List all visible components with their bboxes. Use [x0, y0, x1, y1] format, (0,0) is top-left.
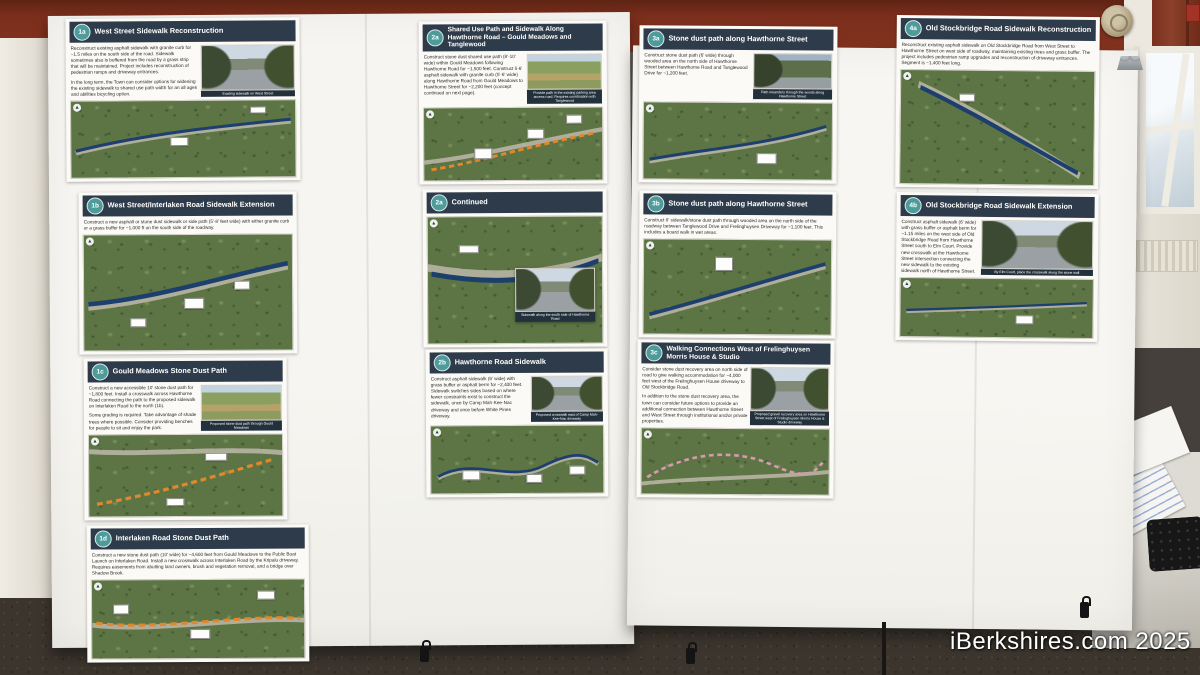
poster-title: Gould Meadows Stone Dust Path — [113, 367, 227, 376]
poster-title: Continued — [452, 198, 488, 207]
poster-badge: 1d — [95, 530, 112, 547]
site-photo: Proposed gravel recovery area on Hawthor… — [750, 367, 829, 426]
inset-photo: Sidewalk along the south side of Hawthor… — [515, 268, 595, 322]
site-photo: Path meanders through the woods along Ha… — [753, 53, 832, 100]
road-photo — [515, 268, 595, 312]
poster-header: 4a Old Stockbridge Road Sidewalk Reconst… — [901, 18, 1096, 41]
poster-text: In addition to the stone dust recovery a… — [642, 394, 748, 425]
poster-badge: 2a — [431, 194, 448, 211]
north-arrow-icon: ▲ — [644, 430, 652, 438]
exit-sign — [1186, 4, 1200, 22]
photo-caption: Existing sidewalk on West Street — [201, 90, 295, 97]
poster-header: 2b Hawthorne Road Sidewalk — [430, 352, 604, 374]
poster-badge: 2b — [434, 354, 451, 371]
board-clip — [686, 648, 695, 664]
map-callout — [462, 470, 480, 480]
aerial-map: ▲ Sidewalk along the south side of Hawth… — [427, 216, 604, 345]
woods-photo — [753, 53, 832, 90]
poster-badge: 1c — [92, 363, 109, 380]
north-arrow-icon: ▲ — [73, 104, 81, 112]
poster-text: Construct 8' sidewalk/stone dust path th… — [644, 217, 831, 237]
site-photo: Provide path in the existing parking are… — [527, 53, 602, 103]
poster-title: Walking Connections West of Frelinghuyse… — [666, 345, 826, 362]
poster-text: Construct asphalt sidewalk (6' wide) wit… — [431, 376, 528, 419]
wall-bell-icon — [1101, 5, 1133, 37]
map-callout — [205, 453, 227, 461]
north-arrow-icon: ▲ — [426, 110, 434, 118]
poster-1a: 1a West Street Sidewalk Reconstruction R… — [65, 17, 300, 182]
poster-header: 3c Walking Connections West of Frelinghu… — [641, 342, 830, 364]
poster-badge: 3c — [645, 344, 662, 361]
poster-title: Old Stockbridge Road Sidewalk Reconstruc… — [926, 25, 1092, 35]
poster-badge: 1a — [73, 24, 90, 41]
poster-text: Consider stone dust recovery area on nor… — [642, 366, 748, 391]
watermark: iBerkshires.com 2025 — [950, 628, 1191, 656]
map-callout — [250, 106, 266, 113]
wainscot — [1128, 214, 1200, 350]
poster-3a: 3a Stone dust path along Hawthorne Stree… — [638, 25, 837, 183]
photo-caption: Path meanders through the woods along Ha… — [753, 89, 832, 100]
poster-header: 4b Old Stockbridge Road Sidewalk Extensi… — [901, 195, 1095, 218]
north-arrow-icon: ▲ — [430, 219, 438, 227]
aerial-map: ▲ — [83, 234, 294, 352]
poster-text: Construct stone dust shared use path (8'… — [424, 54, 524, 97]
board-stand-leg — [882, 622, 886, 675]
map-callout — [526, 474, 542, 483]
road-photo — [531, 376, 603, 412]
photo-caption: Sidewalk along the south side of Hawthor… — [515, 312, 595, 322]
poster-text: Some grading is required. Take advantage… — [89, 412, 198, 431]
aerial-map: ▲ — [91, 579, 305, 660]
poster-title: Old Stockbridge Road Sidewalk Extension — [926, 202, 1073, 212]
map-callout — [184, 298, 204, 309]
map-callout — [527, 129, 544, 139]
poster-header: 3a Stone dust path along Hawthorne Stree… — [643, 28, 833, 50]
poster-text: In the long term, the Town can consider … — [71, 78, 198, 97]
poster-badge: 1b — [87, 197, 104, 214]
map-callout — [569, 466, 585, 475]
site-photo: Proposed stone dust path through Gould M… — [201, 384, 282, 430]
poster-1c: 1c Gould Meadows Stone Dust Path Constru… — [84, 357, 288, 520]
aerial-map: ▲ — [88, 434, 283, 518]
north-arrow-icon: ▲ — [91, 437, 99, 445]
poster-header: 1b West Street/Interlaken Road Sidewalk … — [83, 194, 293, 216]
north-arrow-icon: ▲ — [646, 104, 654, 112]
binder-clip-icon — [1117, 56, 1143, 70]
aerial-map: ▲ — [640, 427, 829, 495]
window-pane — [1146, 53, 1194, 207]
poster-text: Construct a new stone dust path (10' wid… — [92, 551, 304, 577]
poster-4b: 4b Old Stockbridge Road Sidewalk Extensi… — [895, 192, 1099, 342]
map-callout — [130, 318, 146, 327]
aerial-map: ▲ — [70, 99, 297, 179]
poster-title: Interlaken Road Stone Dust Path — [116, 534, 229, 543]
street-photo — [201, 44, 295, 91]
poster-badge: 3b — [647, 195, 664, 212]
map-callout — [756, 153, 776, 164]
poster-2a-continued: 2a Continued ▲ Sidewalk along the south … — [423, 189, 608, 348]
photo-caption: By Elm Court, place the crosswalk along … — [981, 269, 1093, 276]
board-clip — [420, 646, 429, 662]
board-clip — [1080, 602, 1089, 618]
site-photo: By Elm Court, place the crosswalk along … — [981, 220, 1094, 276]
parking-photo — [527, 53, 602, 89]
poster-title: West Street Sidewalk Reconstruction — [94, 27, 223, 36]
board-seam — [365, 14, 371, 646]
north-arrow-icon: ▲ — [433, 428, 441, 436]
photo-caption: Proposed gravel recovery area on Hawthor… — [750, 411, 829, 426]
north-arrow-icon: ▲ — [903, 280, 911, 288]
poster-title: Stone dust path along Hawthorne Street — [668, 35, 807, 44]
map-callout — [715, 257, 733, 271]
poster-title: Hawthorne Road Sidewalk — [455, 358, 546, 367]
photo-caption: Provide path in the existing parking are… — [527, 89, 602, 103]
poster-header: 2a Shared Use Path and Sidewalk Along Ha… — [423, 24, 603, 52]
poster-4a: 4a Old Stockbridge Road Sidewalk Reconst… — [895, 15, 1100, 189]
map-callout — [959, 94, 975, 102]
poster-text: Reconstruct existing asphalt sidewalk wi… — [71, 45, 198, 76]
site-photo: Proposed crosswalk east of Camp Mah-Kee-… — [531, 376, 603, 422]
poster-2b: 2b Hawthorne Road Sidewalk Construct asp… — [426, 349, 609, 498]
poster-3b: 3b Stone dust path along Hawthorne Stree… — [638, 190, 836, 338]
poster-header: 2a Continued — [427, 192, 603, 214]
window — [1134, 46, 1200, 214]
aerial-map: ▲ — [899, 69, 1095, 186]
meadow-photo — [201, 384, 282, 420]
poster-header: 1d Interlaken Road Stone Dust Path — [91, 527, 305, 549]
poster-title: West Street/Interlaken Road Sidewalk Ext… — [108, 201, 275, 210]
map-callout — [474, 148, 492, 159]
photo-caption: Proposed stone dust path through Gould M… — [201, 420, 282, 430]
road-photo — [751, 367, 830, 411]
poster-1d: 1d Interlaken Road Stone Dust Path Const… — [87, 524, 310, 662]
aerial-map: ▲ — [430, 425, 604, 495]
aerial-map: ▲ — [642, 101, 833, 180]
map-callout — [459, 245, 479, 253]
aerial-map: ▲ — [423, 106, 603, 181]
map-callout — [166, 498, 184, 506]
map-callout — [234, 281, 250, 290]
poster-2a: 2a Shared Use Path and Sidewalk Along Ha… — [419, 21, 608, 185]
poster-badge: 4a — [905, 20, 922, 37]
photo-scene: 1a West Street Sidewalk Reconstruction R… — [0, 0, 1200, 675]
radiator-vent — [1136, 240, 1198, 272]
poster-badge: 2a — [427, 29, 444, 46]
poster-title: Shared Use Path and Sidewalk Along Hawth… — [448, 26, 599, 50]
road-photo — [981, 220, 1094, 270]
poster-badge: 3a — [647, 30, 664, 47]
map-callout — [257, 591, 275, 600]
photo-caption: Proposed crosswalk east of Camp Mah-Kee-… — [531, 412, 603, 422]
poster-header: 3b Stone dust path along Hawthorne Stree… — [643, 193, 832, 215]
aerial-map: ▲ — [899, 277, 1094, 339]
poster-text: Construct a new accessible 10' stone dus… — [89, 385, 198, 410]
poster-header: 1a West Street Sidewalk Reconstruction — [69, 20, 295, 43]
site-photo: Existing sidewalk on West Street — [201, 44, 295, 97]
map-callout — [113, 604, 129, 614]
poster-3c: 3c Walking Connections West of Frelinghu… — [636, 339, 834, 498]
map-callout — [566, 115, 582, 124]
basket — [1146, 516, 1200, 572]
poster-text: Construct a new asphalt or stone dust si… — [84, 218, 292, 231]
poster-text: Construct stone dust path (6' wide) thro… — [644, 52, 750, 77]
map-callout — [1016, 315, 1034, 324]
map-callout — [190, 628, 210, 638]
map-callout — [170, 137, 188, 146]
poster-header: 1c Gould Meadows Stone Dust Path — [88, 360, 283, 382]
poster-badge: 4b — [905, 197, 922, 214]
poster-text: Reconstruct existing asphalt sidewalk on… — [901, 42, 1094, 68]
poster-title: Stone dust path along Hawthorne Street — [668, 200, 807, 209]
poster-1b: 1b West Street/Interlaken Road Sidewalk … — [79, 191, 298, 354]
aerial-map: ▲ — [643, 239, 833, 336]
poster-text: Construct asphalt sidewalk (6' wide) wit… — [901, 219, 978, 275]
